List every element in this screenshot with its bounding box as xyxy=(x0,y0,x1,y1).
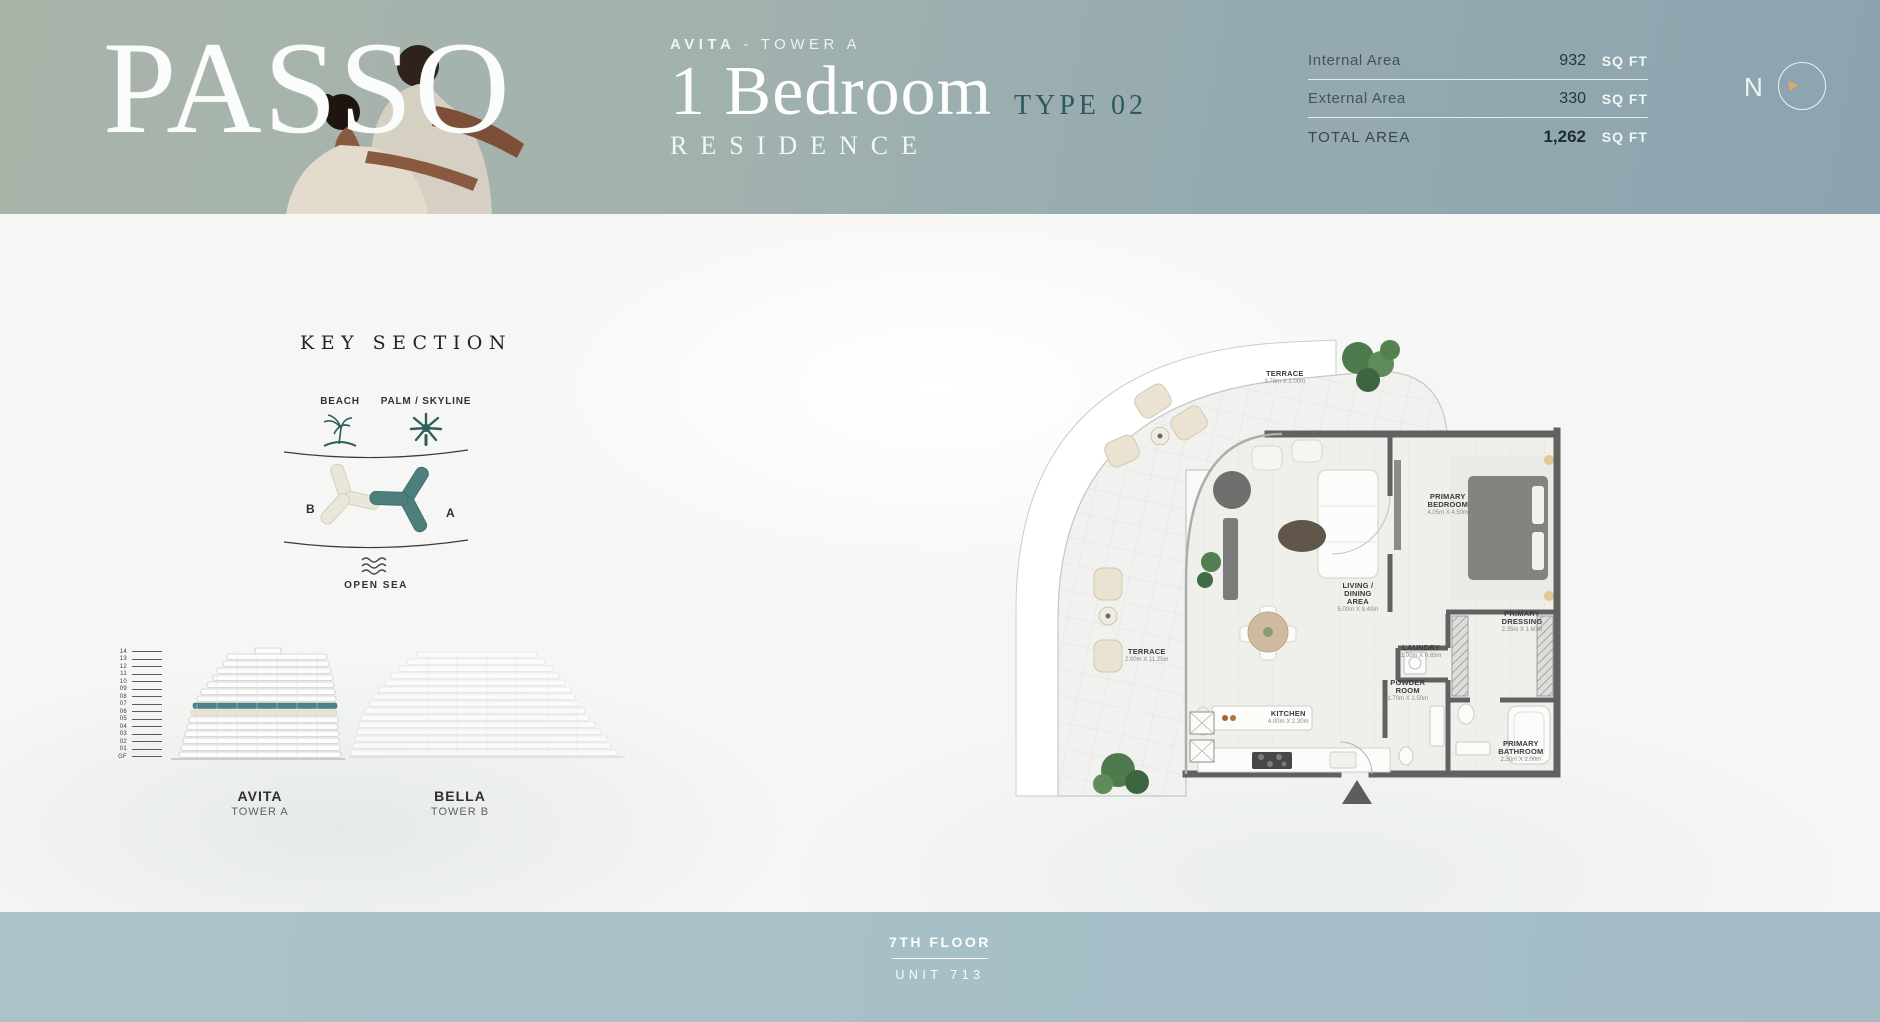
open-sea-label: OPEN SEA xyxy=(344,580,408,591)
footer-band: 7TH FLOOR UNIT 713 xyxy=(0,912,1880,1022)
area-label: Internal Area xyxy=(1308,52,1512,69)
key-diagram-graphic xyxy=(278,392,474,602)
area-label: External Area xyxy=(1308,90,1512,107)
tower-a-footprint xyxy=(364,450,454,537)
floor-number: 05 xyxy=(113,716,127,722)
floor-number: 12 xyxy=(113,664,127,670)
type-label: TYPE 02 xyxy=(1014,90,1147,122)
area-row-external: External Area 330 SQ FT xyxy=(1308,80,1648,118)
north-compass: N xyxy=(1744,60,1854,120)
avita-tower-label: AVITA TOWER A xyxy=(205,788,315,818)
floor-plan: TERRACE 3.78m X 2.00m PRIMARY BEDROOM 4.… xyxy=(1000,310,1580,822)
area-unit: SQ FT xyxy=(1586,129,1648,145)
floor-number: 08 xyxy=(113,694,127,700)
project-name: AVITA xyxy=(670,36,735,53)
area-row-total: TOTAL AREA 1,262 SQ FT xyxy=(1308,118,1648,156)
waves-icon xyxy=(362,558,386,574)
tower-a-letter: A xyxy=(446,506,455,520)
bella-tower-label: BELLA TOWER B xyxy=(405,788,515,818)
tower-b-letter: B xyxy=(306,502,315,516)
bella-elevation-drawing xyxy=(347,646,627,776)
project-line: AVITA-TOWER A xyxy=(670,36,1147,53)
area-value: 330 xyxy=(1512,90,1586,108)
floor-number: 11 xyxy=(113,671,127,677)
footer-divider xyxy=(893,958,988,959)
area-value: 932 xyxy=(1512,52,1586,70)
floor-number: GF xyxy=(113,754,127,760)
floor-scale: 14 13 12 11 10 09 08 07 06 05 04 03 02 0… xyxy=(113,648,162,761)
header-band: PASSO AVITA-TOWER A 1 Bedroom TYPE 02 RE… xyxy=(0,0,1880,214)
floor-number: 03 xyxy=(113,731,127,737)
palm-icon xyxy=(411,414,441,446)
compass-marker-icon xyxy=(1784,78,1797,91)
building-elevation: 14 13 12 11 10 09 08 07 06 05 04 03 02 0… xyxy=(113,642,658,832)
area-unit: SQ FT xyxy=(1586,91,1648,107)
area-value: 1,262 xyxy=(1512,127,1586,147)
brand-logo: PASSO xyxy=(103,0,512,188)
tower-b-subtitle: TOWER B xyxy=(405,806,515,818)
area-unit: SQ FT xyxy=(1586,53,1648,69)
area-row-internal: Internal Area 932 SQ FT xyxy=(1308,42,1648,80)
floor-label: 7TH FLOOR xyxy=(889,934,991,950)
beach-label: BEACH xyxy=(320,396,360,407)
floor-number: 06 xyxy=(113,709,127,715)
floor-number: 13 xyxy=(113,656,127,662)
floor-number: 09 xyxy=(113,686,127,692)
compass-circle xyxy=(1778,62,1826,110)
unit-label: UNIT 713 xyxy=(895,968,984,982)
floor-number: 04 xyxy=(113,724,127,730)
entrance-marker xyxy=(1342,780,1372,804)
floor-number: 02 xyxy=(113,739,127,745)
floor-number: 14 xyxy=(113,649,127,655)
area-table: Internal Area 932 SQ FT External Area 33… xyxy=(1308,42,1648,156)
unit-type-title: 1 Bedroom xyxy=(670,55,992,129)
tower-name: TOWER A xyxy=(761,36,861,53)
residence-subtitle: RESIDENCE xyxy=(670,131,1147,161)
floor-number: 01 xyxy=(113,746,127,752)
palm-skyline-label: PALM / SKYLINE xyxy=(381,396,471,407)
title-block: AVITA-TOWER A 1 Bedroom TYPE 02 RESIDENC… xyxy=(670,36,1147,161)
tower-b-name: BELLA xyxy=(405,788,515,804)
floor-plan-drawing xyxy=(1000,310,1580,822)
tower-a-subtitle: TOWER A xyxy=(205,806,315,818)
project-separator: - xyxy=(743,36,753,53)
key-section-diagram: BEACH PALM / SKYLINE xyxy=(278,392,474,602)
avita-elevation-drawing xyxy=(167,646,347,776)
beach-icon xyxy=(324,415,356,446)
main-content: KEY SECTION BEACH PALM / SKYLINE xyxy=(0,214,1880,912)
floor-number-highlight: 07 xyxy=(113,701,127,707)
area-label: TOTAL AREA xyxy=(1308,129,1512,146)
tower-a-name: AVITA xyxy=(205,788,315,804)
floor-number: 10 xyxy=(113,679,127,685)
key-section-title: KEY SECTION xyxy=(300,332,512,354)
compass-n-label: N xyxy=(1744,72,1763,103)
tower-b-footprint xyxy=(304,455,384,529)
